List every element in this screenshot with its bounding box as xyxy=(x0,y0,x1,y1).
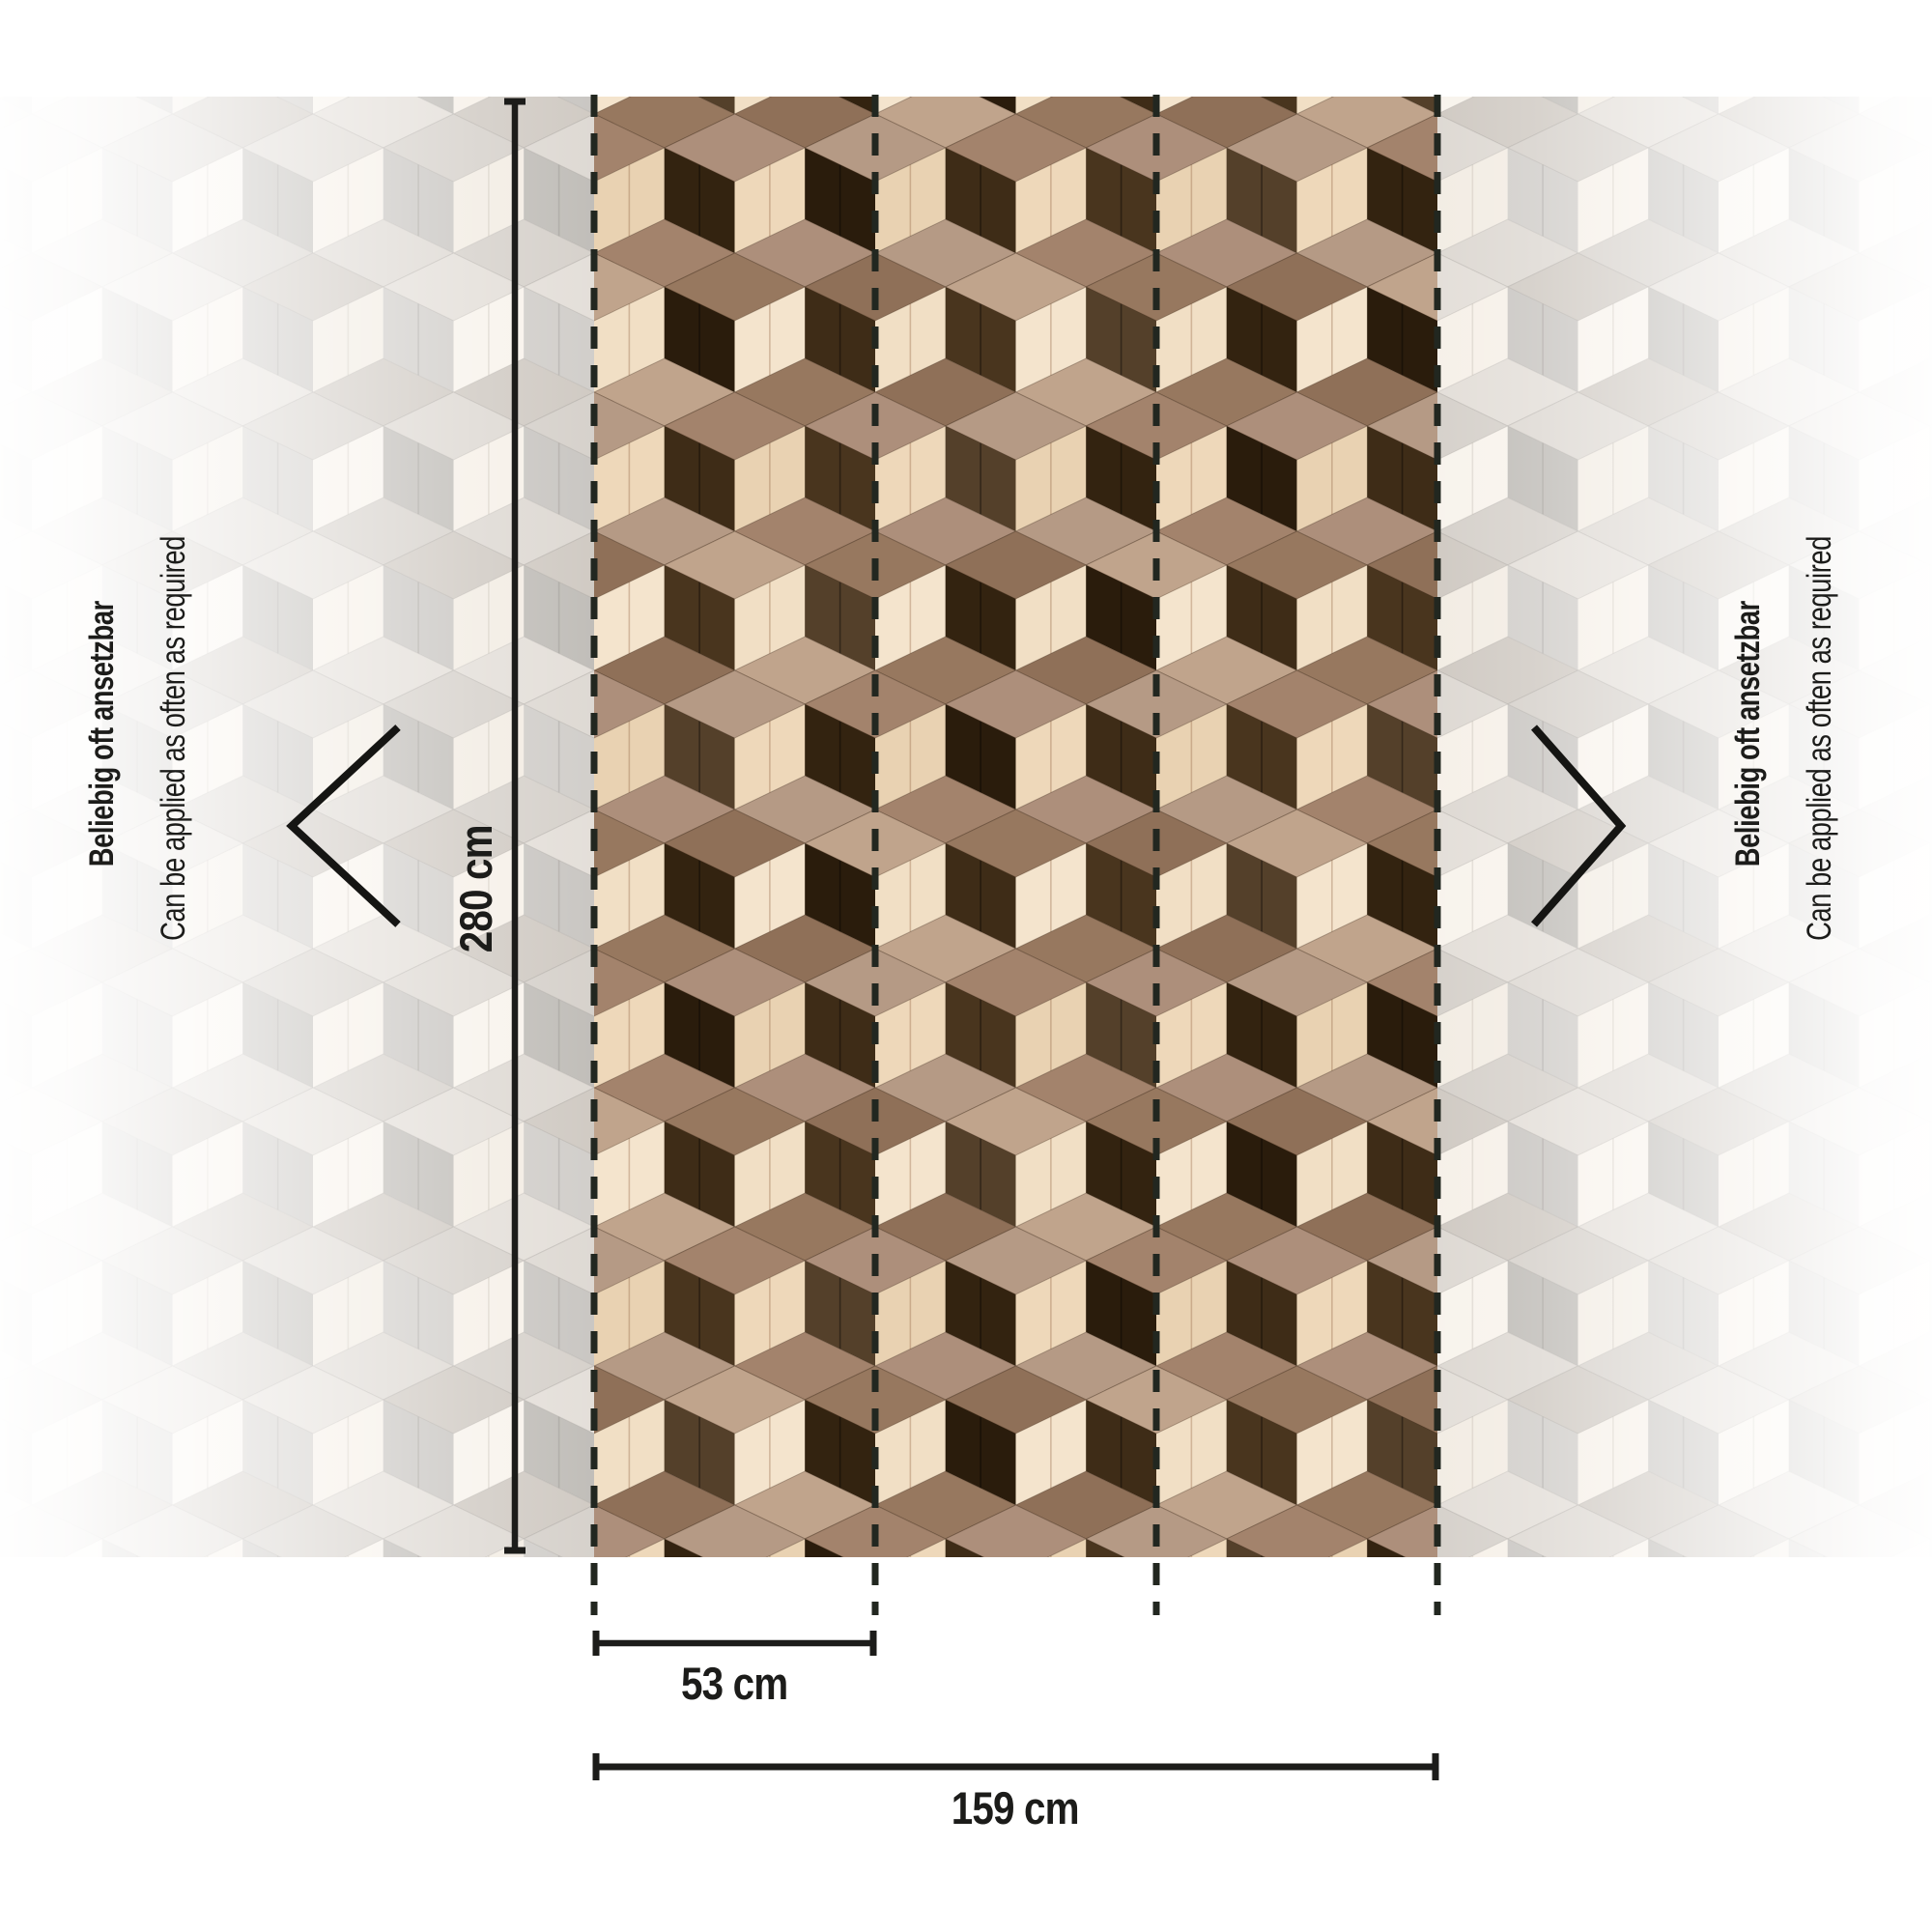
right-fade-overlay xyxy=(1437,97,1932,1557)
wallpaper-dimension-diagram: 280 cm 53 cm 159 cm Beliebig oft ansetzb… xyxy=(0,0,1932,1932)
wallpaper-pattern-canvas xyxy=(0,0,1932,1932)
